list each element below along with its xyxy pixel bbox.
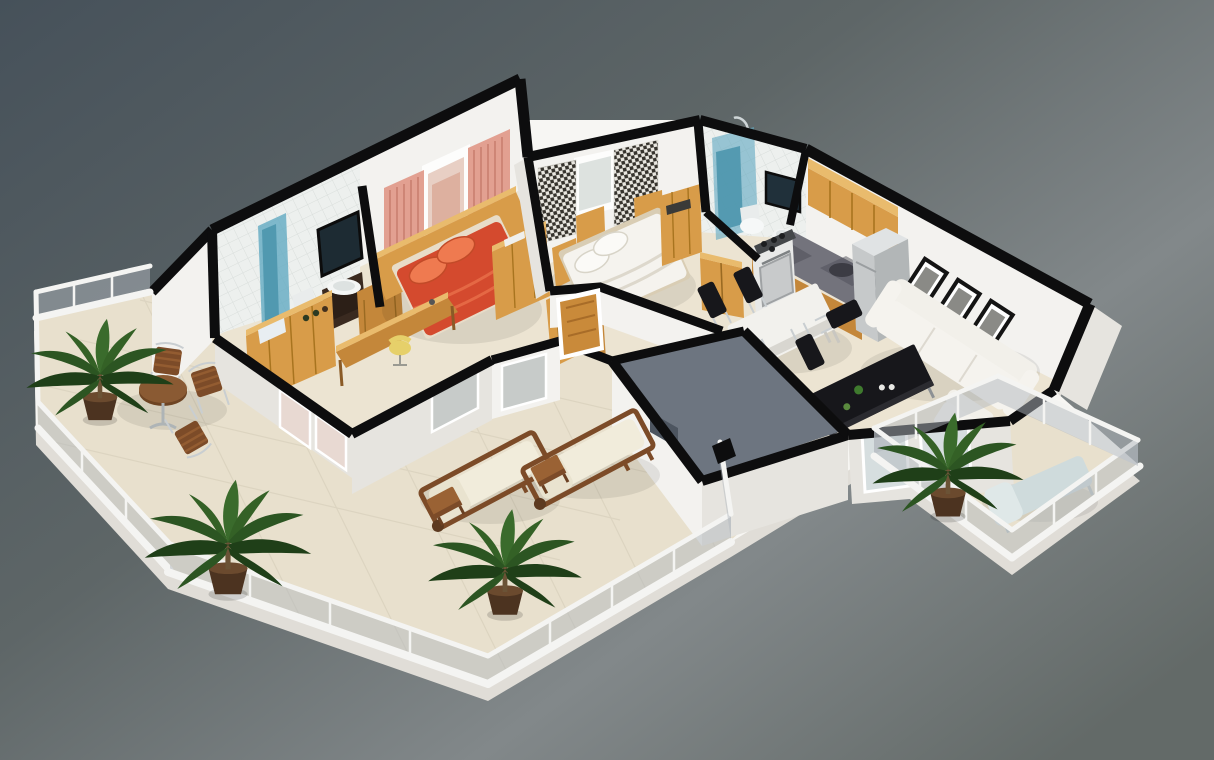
kitchen-sink bbox=[829, 263, 855, 277]
apartment-3d-scene bbox=[0, 0, 1214, 760]
entry-door bbox=[556, 288, 604, 360]
bedroom2-wardrobe bbox=[660, 184, 702, 266]
floor-plan-render bbox=[0, 0, 1214, 760]
